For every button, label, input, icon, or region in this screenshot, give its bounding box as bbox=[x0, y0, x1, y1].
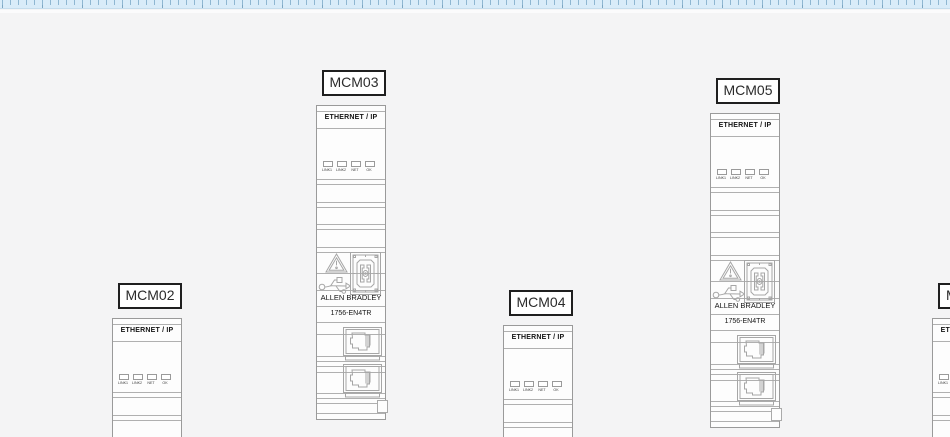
divider-line bbox=[711, 314, 779, 315]
module-bottom-notch bbox=[377, 400, 388, 413]
divider-line bbox=[317, 111, 385, 112]
divider-line bbox=[711, 369, 779, 370]
module-tag-label[interactable]: M bbox=[938, 283, 950, 309]
led-labels: LINK1 LINK2 NET OK bbox=[936, 381, 950, 385]
module-bottom-notch bbox=[771, 408, 782, 421]
status-leds bbox=[717, 169, 769, 175]
module-mcm02[interactable]: MCM02 ETHERNET / IP LINK1 LINK2 NET OK bbox=[112, 318, 182, 437]
led-label-net: NET bbox=[742, 176, 756, 180]
led-link1 bbox=[119, 374, 129, 380]
divider-line bbox=[933, 397, 950, 398]
sd-card-slot-icon bbox=[744, 260, 775, 303]
led-label-link2: LINK2 bbox=[130, 381, 144, 385]
divider-line bbox=[113, 397, 181, 398]
led-label-link2: LINK2 bbox=[521, 388, 535, 392]
divider-line bbox=[317, 224, 385, 225]
led-label-link1: LINK1 bbox=[116, 381, 130, 385]
divider-line bbox=[711, 192, 779, 193]
divider-line bbox=[504, 331, 572, 332]
divider-line bbox=[933, 415, 950, 416]
led-net bbox=[147, 374, 157, 380]
divider-line bbox=[504, 404, 572, 405]
led-label-ok: OK bbox=[549, 388, 563, 392]
rj45-port-icon bbox=[343, 327, 382, 361]
led-ok bbox=[552, 381, 562, 387]
divider-line bbox=[317, 229, 385, 230]
model-text: 1756-EN4TR bbox=[711, 318, 779, 325]
divider-line bbox=[113, 341, 181, 342]
module-mcm05[interactable]: MCM05 ETHERNET / IP LINK1 LINK2 NET OK bbox=[710, 113, 780, 428]
module-header-text: ETHERNET / IP bbox=[113, 327, 181, 334]
led-label-ok: OK bbox=[362, 168, 376, 172]
divider-line bbox=[504, 399, 572, 400]
led-ok bbox=[365, 161, 375, 167]
divider-line bbox=[711, 232, 779, 233]
led-label-ok: OK bbox=[756, 176, 770, 180]
divider-line bbox=[711, 187, 779, 188]
led-label-link2: LINK2 bbox=[334, 168, 348, 172]
led-label-link1: LINK1 bbox=[320, 168, 334, 172]
module-header-text: ETHERNET / IP bbox=[504, 334, 572, 341]
led-link1 bbox=[510, 381, 520, 387]
divider-line bbox=[711, 237, 779, 238]
divider-line bbox=[711, 210, 779, 211]
divider-line bbox=[317, 361, 385, 362]
led-label-ok: OK bbox=[158, 381, 172, 385]
led-link1 bbox=[323, 161, 333, 167]
brand-text: ALLEN BRADLEY bbox=[711, 301, 779, 310]
led-ok bbox=[759, 169, 769, 175]
divider-line bbox=[317, 403, 385, 404]
divider-line bbox=[317, 306, 385, 307]
divider-line bbox=[317, 128, 385, 129]
divider-line bbox=[711, 215, 779, 216]
divider-line bbox=[711, 136, 779, 137]
led-label-link1: LINK1 bbox=[936, 381, 950, 385]
led-label-link1: LINK1 bbox=[507, 388, 521, 392]
divider-line bbox=[317, 179, 385, 180]
led-label-net: NET bbox=[535, 388, 549, 392]
divider-line bbox=[317, 202, 385, 203]
led-labels: LINK1 LINK2 NET OK bbox=[714, 176, 774, 180]
led-ok bbox=[161, 374, 171, 380]
divider-line bbox=[711, 119, 779, 120]
divider-line bbox=[933, 420, 950, 421]
module-tag-label[interactable]: MCM03 bbox=[322, 70, 386, 96]
led-link1 bbox=[717, 169, 727, 175]
led-link2 bbox=[731, 169, 741, 175]
led-labels: LINK1 LINK2 NET OK bbox=[320, 168, 380, 172]
rj45-port-icon bbox=[737, 372, 776, 406]
divider-line bbox=[711, 406, 779, 407]
divider-line bbox=[711, 411, 779, 412]
brand-text: ALLEN BRADLEY bbox=[317, 293, 385, 302]
module-mcm03[interactable]: MCM03 ETHERNET / IP LINK1 LINK2 NET OK bbox=[316, 105, 386, 420]
led-labels: LINK1 LINK2 NET OK bbox=[507, 388, 567, 392]
divider-line bbox=[317, 184, 385, 185]
drawing-canvas[interactable]: MCM02 ETHERNET / IP LINK1 LINK2 NET OK bbox=[0, 0, 950, 437]
led-label-link2: LINK2 bbox=[728, 176, 742, 180]
divider-line bbox=[317, 398, 385, 399]
led-label-net: NET bbox=[144, 381, 158, 385]
divider-line bbox=[933, 324, 950, 325]
divider-line bbox=[113, 392, 181, 393]
warning-triangle-icon bbox=[325, 253, 348, 273]
led-label-net: NET bbox=[348, 168, 362, 172]
divider-line bbox=[711, 421, 779, 422]
led-labels: LINK1 LINK2 NET OK bbox=[116, 381, 176, 385]
module-tag-label[interactable]: MCM05 bbox=[716, 78, 780, 104]
led-link2 bbox=[524, 381, 534, 387]
warning-triangle-icon bbox=[719, 261, 742, 281]
divider-line bbox=[113, 415, 181, 416]
led-net bbox=[538, 381, 548, 387]
status-leds bbox=[119, 374, 171, 380]
rj45-port-icon bbox=[343, 364, 382, 398]
divider-line bbox=[317, 413, 385, 414]
model-text: 1756-EN4TR bbox=[317, 310, 385, 317]
led-net bbox=[745, 169, 755, 175]
divider-line bbox=[504, 427, 572, 428]
status-leds bbox=[939, 374, 950, 380]
divider-line bbox=[113, 420, 181, 421]
status-leds bbox=[323, 161, 375, 167]
sd-card-slot-icon bbox=[350, 252, 381, 295]
led-link2 bbox=[337, 161, 347, 167]
divider-line bbox=[317, 207, 385, 208]
module-header-text: ETHERNET / IP bbox=[933, 327, 950, 334]
divider-line bbox=[711, 330, 779, 331]
led-net bbox=[351, 161, 361, 167]
ruler-gap bbox=[0, 10, 950, 13]
horizontal-ruler bbox=[0, 0, 950, 9]
module-header-text: ETHERNET / IP bbox=[711, 122, 779, 129]
rj45-port-icon bbox=[737, 335, 776, 369]
divider-line bbox=[933, 341, 950, 342]
module-header-text: ETHERNET / IP bbox=[317, 114, 385, 121]
module-tag-label[interactable]: MCM04 bbox=[509, 290, 573, 316]
divider-line bbox=[711, 255, 779, 256]
divider-line bbox=[317, 247, 385, 248]
divider-line bbox=[933, 392, 950, 393]
module-mcm04[interactable]: MCM04 ETHERNET / IP LINK1 LINK2 NET OK bbox=[503, 325, 573, 437]
divider-line bbox=[317, 322, 385, 323]
divider-line bbox=[504, 348, 572, 349]
divider-line bbox=[113, 324, 181, 325]
led-link2 bbox=[133, 374, 143, 380]
status-leds bbox=[510, 381, 562, 387]
divider-line bbox=[504, 422, 572, 423]
led-label-link1: LINK1 bbox=[714, 176, 728, 180]
module-mcm06-partial[interactable]: M ETHERNET / IP LINK1 LINK2 NET OK bbox=[932, 318, 950, 437]
led-link1 bbox=[939, 374, 949, 380]
module-tag-label[interactable]: MCM02 bbox=[118, 283, 182, 309]
